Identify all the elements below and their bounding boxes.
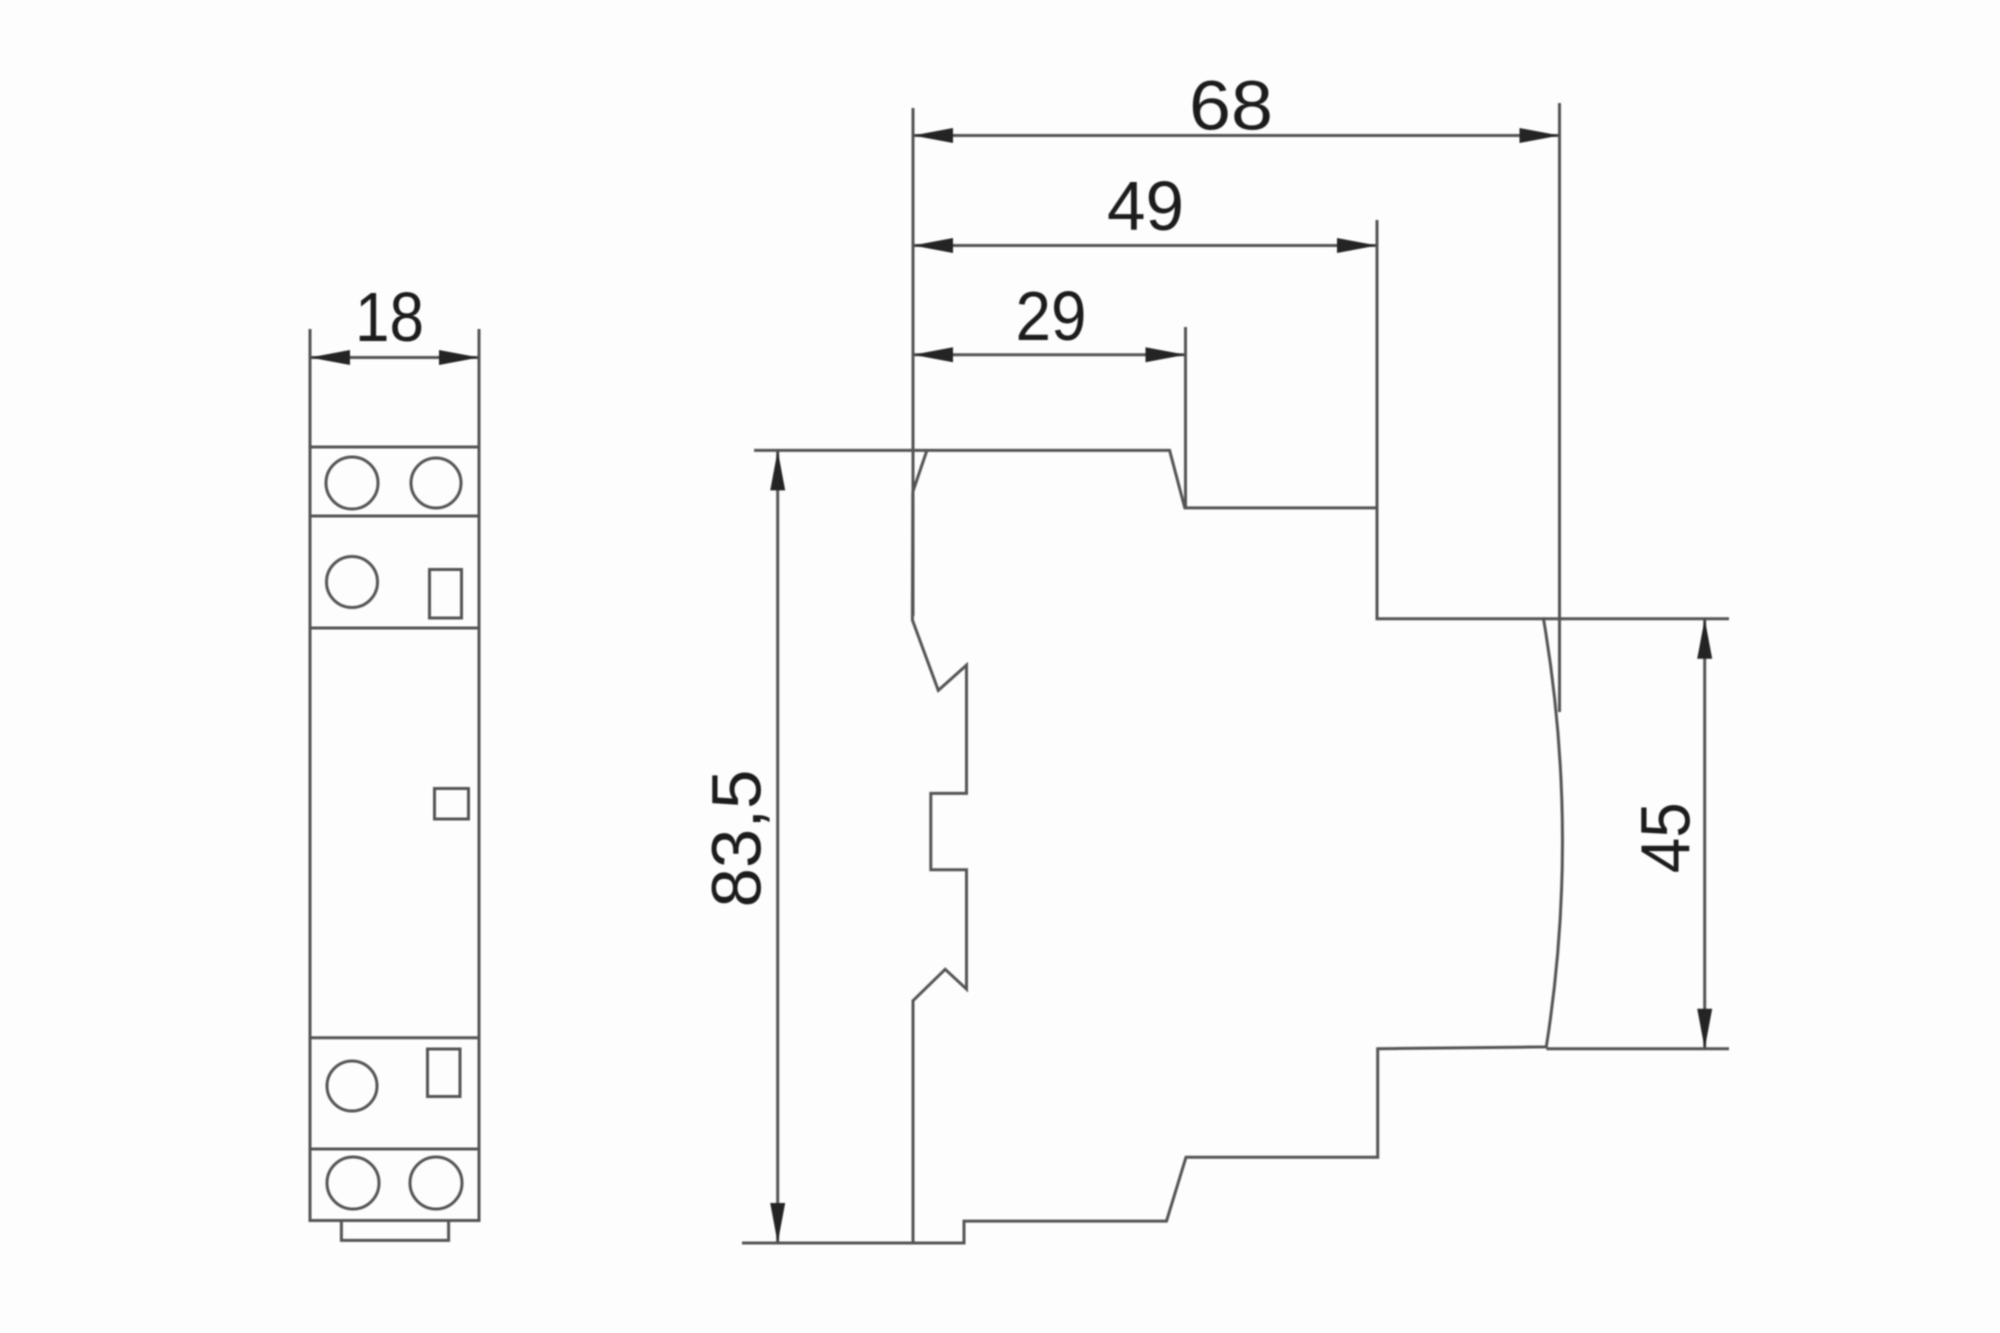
svg-text:49: 49 — [1107, 167, 1184, 245]
svg-text:68: 68 — [1189, 67, 1273, 145]
svg-text:45: 45 — [1627, 802, 1705, 873]
svg-text:18: 18 — [355, 278, 424, 356]
svg-text:83,5: 83,5 — [698, 770, 776, 908]
svg-text:29: 29 — [1016, 277, 1087, 355]
